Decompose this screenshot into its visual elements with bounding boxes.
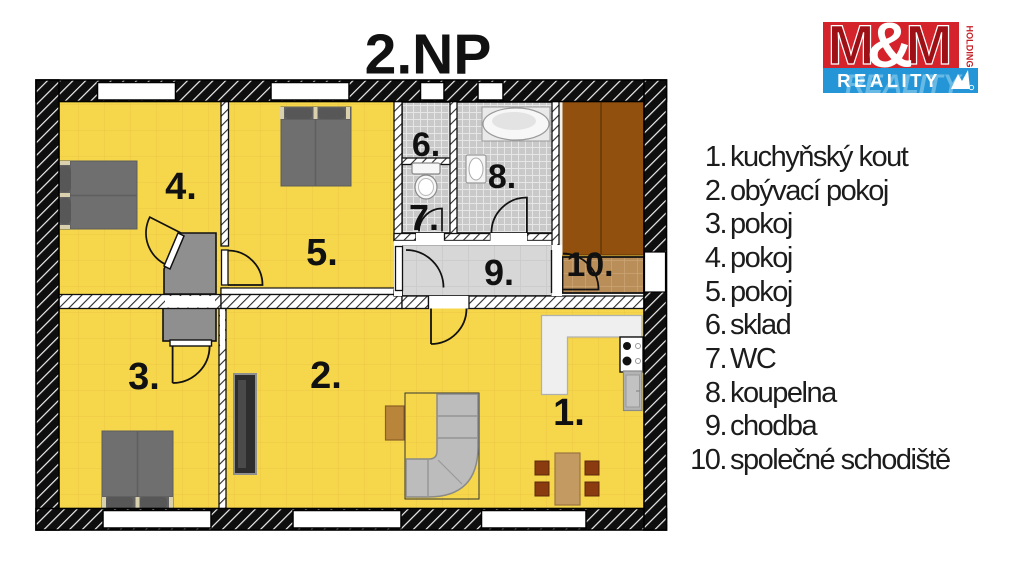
- svg-text:sklad: sklad: [730, 309, 791, 341]
- svg-text:pokoj: pokoj: [730, 276, 792, 308]
- svg-text:2.NP: 2.NP: [365, 23, 492, 87]
- svg-text:5.: 5.: [306, 232, 338, 274]
- svg-text:1.: 1.: [553, 392, 585, 434]
- svg-text:7.: 7.: [409, 197, 439, 238]
- svg-text:9.: 9.: [484, 252, 514, 293]
- svg-text:koupelna: koupelna: [730, 377, 838, 409]
- svg-text:10.: 10.: [566, 246, 613, 284]
- svg-text:2.: 2.: [310, 355, 342, 397]
- svg-text:2.: 2.: [705, 175, 726, 207]
- svg-text:6.: 6.: [412, 126, 440, 164]
- svg-text:obývací pokoj: obývací pokoj: [730, 175, 888, 207]
- svg-text:4.: 4.: [165, 166, 197, 208]
- svg-text:7.: 7.: [705, 343, 726, 375]
- svg-text:9.: 9.: [705, 410, 726, 442]
- svg-text:10.: 10.: [690, 444, 726, 476]
- svg-text:pokoj: pokoj: [730, 208, 792, 240]
- svg-text:kuchyňský kout: kuchyňský kout: [730, 141, 909, 173]
- svg-text:1.: 1.: [705, 141, 726, 173]
- svg-text:5.: 5.: [705, 276, 726, 308]
- svg-text:3.: 3.: [128, 356, 160, 398]
- svg-text:4.: 4.: [705, 242, 726, 274]
- svg-text:pokoj: pokoj: [730, 242, 792, 274]
- svg-text:6.: 6.: [705, 309, 726, 341]
- svg-text:HOLDING: HOLDING: [965, 26, 975, 68]
- svg-text:3.: 3.: [705, 208, 726, 240]
- svg-text:REALITY: REALITY: [837, 70, 941, 91]
- svg-text:8.: 8.: [705, 377, 726, 409]
- svg-text:8.: 8.: [488, 158, 516, 196]
- svg-text:chodba: chodba: [730, 410, 819, 442]
- svg-text:společné schodiště: společné schodiště: [730, 444, 950, 476]
- svg-text:WC: WC: [730, 343, 776, 375]
